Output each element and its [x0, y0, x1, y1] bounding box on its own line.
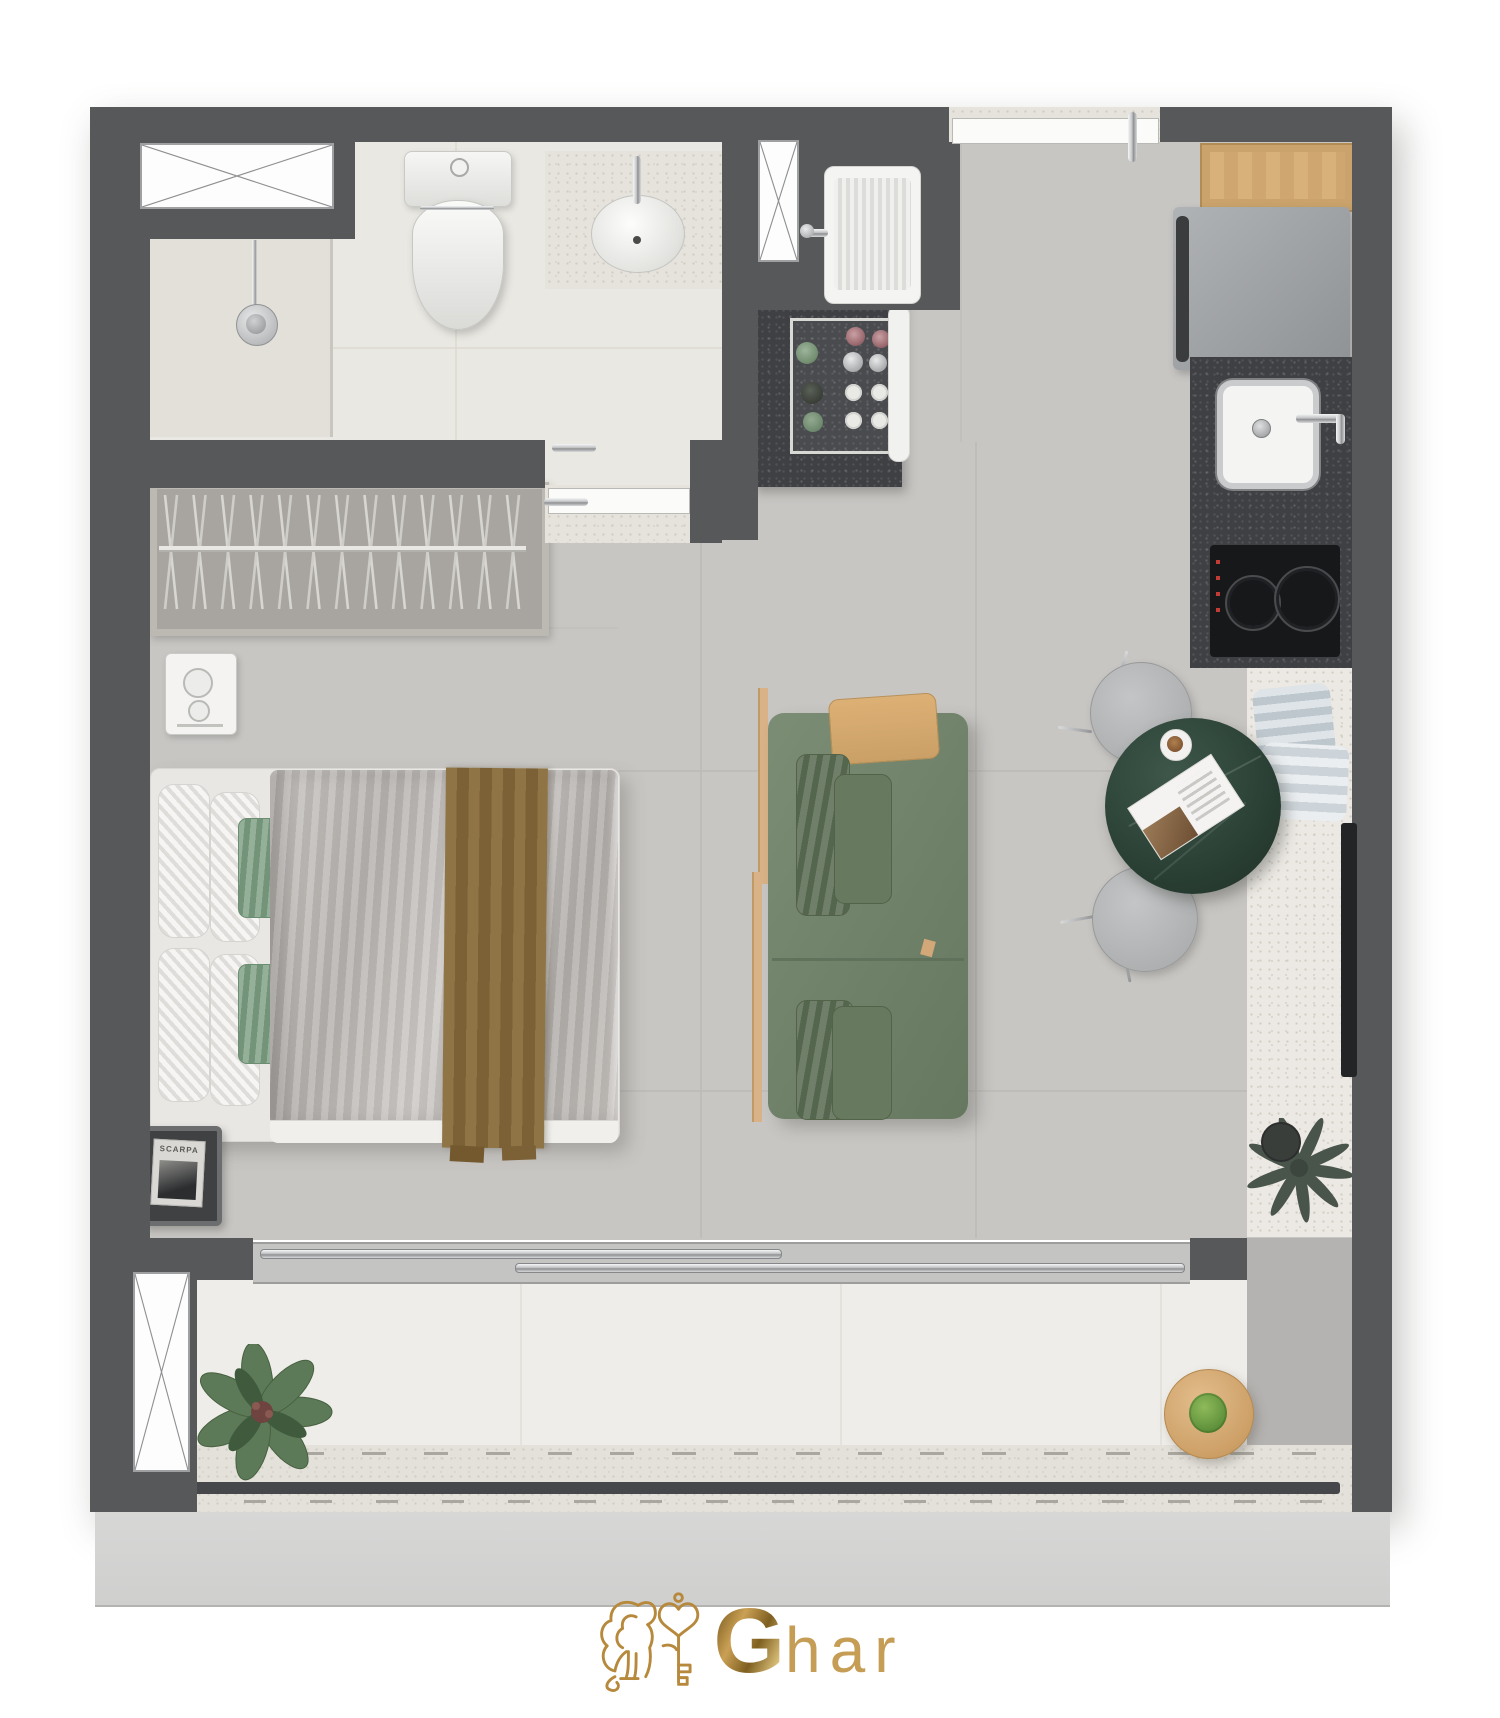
magazine-cover-art — [158, 1160, 198, 1200]
laundry-faucet-knob — [800, 224, 814, 238]
control-panel-dial-icon — [183, 668, 213, 698]
plate-icon — [871, 412, 888, 429]
sliding-door-rail-right — [515, 1263, 1185, 1273]
shower-head-center — [246, 314, 266, 334]
control-panel-label-bar — [177, 724, 223, 727]
plate-icon — [845, 384, 862, 401]
entry-door-handle-icon — [1128, 112, 1137, 162]
brand-logo: G har — [595, 1588, 904, 1694]
jar-icon — [869, 354, 887, 372]
balcony-joint-dash-bottom — [200, 1500, 1340, 1503]
floor-plan-canvas: SCARPA — [0, 0, 1500, 1718]
toilet-flush-button-icon — [450, 158, 469, 177]
window-utility-icon — [758, 140, 799, 262]
balcony-joint — [520, 1280, 522, 1445]
magazine: SCARPA — [150, 1139, 205, 1208]
balcony-joint — [1160, 1280, 1162, 1445]
vanity-drain-icon — [633, 236, 641, 244]
folding-board — [888, 305, 910, 462]
bed-pillow — [158, 948, 210, 1102]
bed-throw-tab — [502, 1145, 536, 1160]
bath-joint — [332, 347, 722, 349]
sliding-door-rail-left — [260, 1249, 782, 1259]
sofa-cushion — [834, 774, 892, 904]
wall-balcony-right-segment — [1190, 1238, 1247, 1280]
bathroom-door-handle-icon — [544, 498, 588, 506]
bed-throw-tab — [450, 1145, 485, 1163]
sofa-section-divider — [772, 958, 964, 961]
wall-bathroom-east — [722, 107, 758, 540]
wall-balcony-left-segment — [197, 1238, 253, 1280]
window-bathroom-icon — [140, 143, 334, 209]
dark-bottle-icon — [801, 382, 823, 404]
plate-icon — [845, 412, 862, 429]
sofa-wood-slat — [758, 688, 768, 884]
sofa-wood-slat — [752, 872, 762, 1122]
refrigerator — [1173, 207, 1350, 370]
floor-joint — [975, 442, 977, 1238]
bottle-icon — [796, 342, 818, 364]
sofa — [752, 688, 974, 1122]
lion-key-icon — [595, 1588, 711, 1694]
window-balcony-icon — [133, 1272, 190, 1472]
wall-right — [1352, 107, 1392, 1512]
kitchen-faucet-spout-icon — [1336, 414, 1345, 444]
espresso-coffee — [1167, 736, 1183, 752]
bed — [150, 768, 618, 1148]
wall-bathroom-south — [90, 440, 545, 488]
cooktop-burner-icon — [1225, 575, 1281, 631]
floor-joint — [960, 142, 962, 442]
balcony-plant-icon — [196, 1344, 334, 1484]
vanity-sink — [591, 195, 685, 273]
plate-icon — [871, 384, 888, 401]
bed-throw — [442, 767, 548, 1148]
wardrobe — [150, 482, 549, 636]
toilet-bowl — [412, 200, 504, 330]
cooktop-burner-icon — [1274, 566, 1340, 632]
balcony-joint — [840, 1280, 842, 1445]
wall-tv — [1341, 823, 1357, 1077]
logo-initial: G — [713, 1595, 783, 1687]
ledge-plant-icon — [1242, 1118, 1356, 1224]
toilet-seat-hinge — [420, 206, 494, 210]
sofa-cushion — [832, 1006, 892, 1120]
kitchen-shelf-board — [1210, 152, 1345, 199]
control-panel-button-icon — [188, 700, 210, 722]
bathroom-door-handle-icon — [552, 444, 596, 452]
balcony-table-plant-icon — [1189, 1393, 1227, 1433]
magazine-title: SCARPA — [154, 1140, 205, 1156]
balcony-joint-dash-top — [200, 1452, 1340, 1455]
glass-icon — [846, 327, 865, 346]
green-cup-icon — [803, 412, 823, 432]
wall-bathroom-door-pier — [690, 440, 722, 543]
jar-icon — [843, 352, 863, 372]
bed-pillow — [158, 784, 210, 938]
balcony-concrete-patch — [1247, 1238, 1352, 1445]
cooktop-controls-icon — [1216, 560, 1220, 620]
logo-text: har — [785, 1600, 905, 1682]
vanity-faucet-icon — [633, 156, 641, 204]
refrigerator-handle-icon — [1176, 216, 1189, 362]
laundry-tub-ribs — [834, 178, 911, 290]
kitchen-sink-drain-icon — [1252, 419, 1271, 438]
floor-joint — [700, 442, 702, 1238]
balcony-railing-bar — [185, 1482, 1340, 1494]
